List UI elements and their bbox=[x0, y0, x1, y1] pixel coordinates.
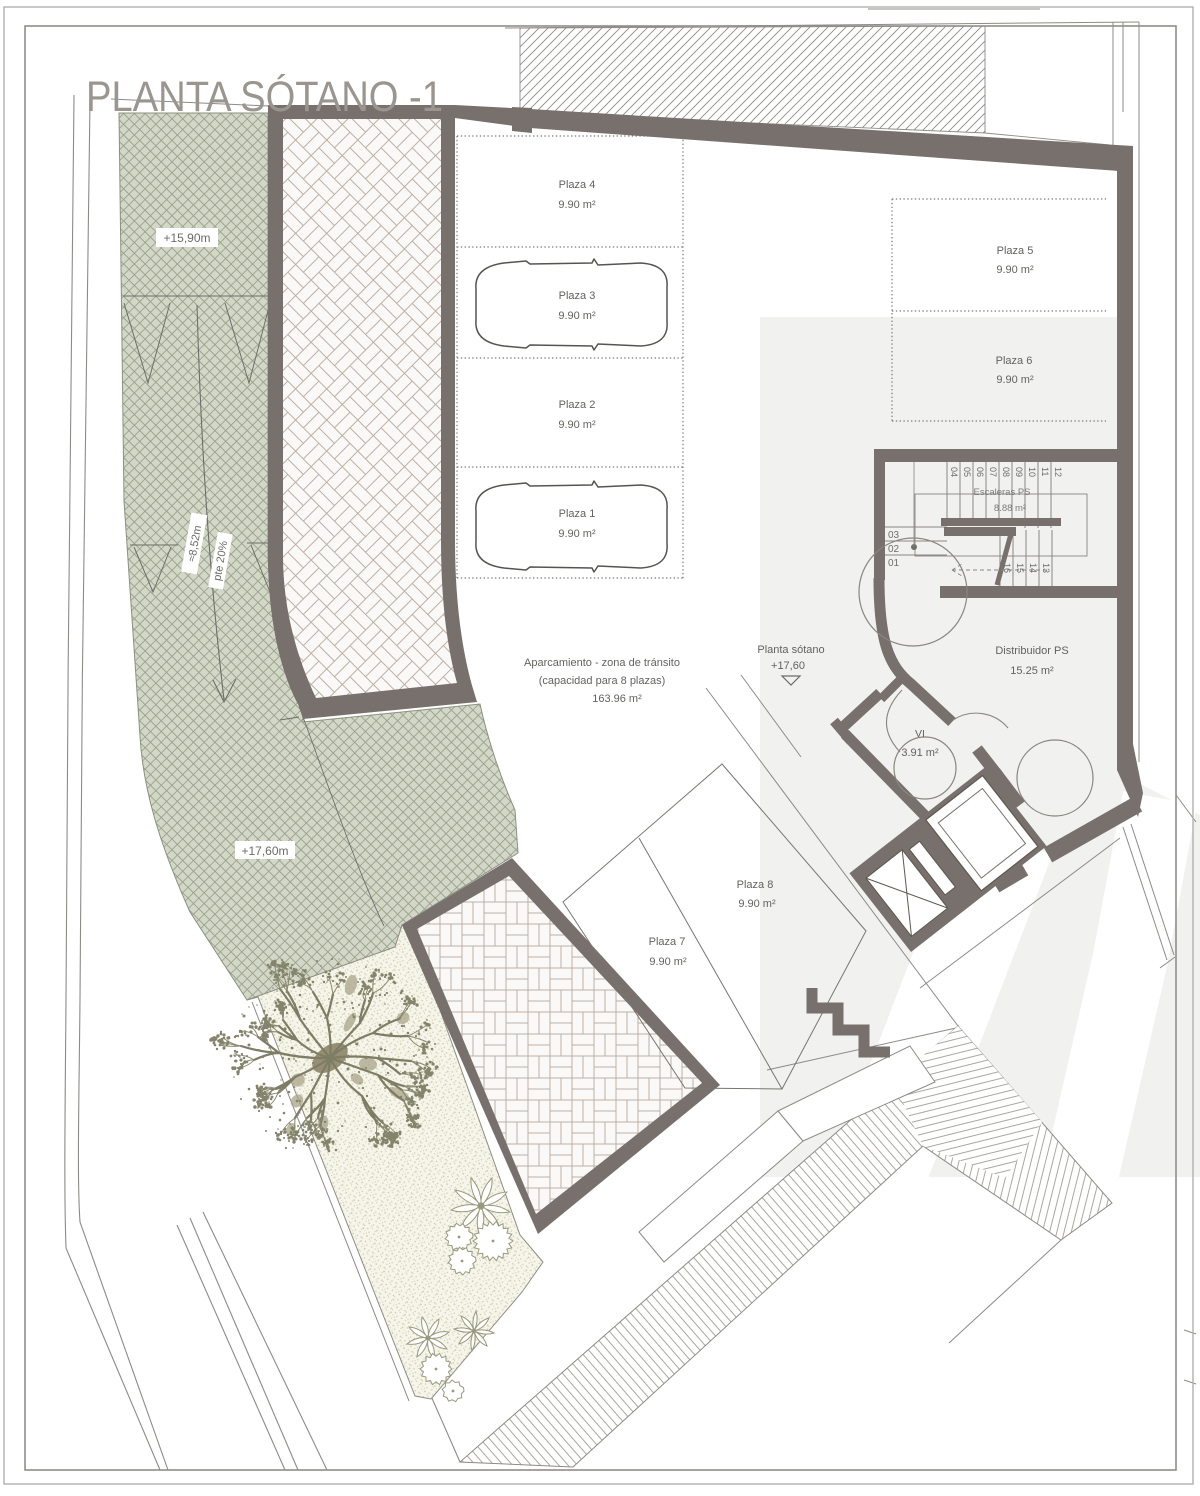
svg-text:Plaza 5: Plaza 5 bbox=[997, 245, 1034, 257]
svg-text:+17,60m: +17,60m bbox=[241, 844, 288, 858]
svg-text:12: 12 bbox=[1053, 467, 1063, 477]
svg-text:9.90 m²: 9.90 m² bbox=[649, 956, 687, 968]
svg-text:PLANTA SÓTANO -1: PLANTA SÓTANO -1 bbox=[86, 73, 443, 121]
svg-text:+15,90m: +15,90m bbox=[163, 231, 210, 245]
svg-text:Escaleras PS: Escaleras PS bbox=[973, 487, 1030, 498]
svg-text:8.88 m²: 8.88 m² bbox=[994, 503, 1026, 514]
svg-text:9.90 m²: 9.90 m² bbox=[558, 419, 596, 431]
svg-text:9.90 m²: 9.90 m² bbox=[996, 374, 1034, 386]
svg-text:02: 02 bbox=[888, 544, 900, 555]
svg-text:Distribuidor PS: Distribuidor PS bbox=[995, 645, 1068, 657]
svg-text:9.90 m²: 9.90 m² bbox=[558, 310, 596, 322]
svg-text:Aparcamiento - zona de tránsit: Aparcamiento - zona de tránsito bbox=[524, 657, 680, 669]
svg-text:9.90 m²: 9.90 m² bbox=[996, 264, 1034, 276]
svg-text:+17,60: +17,60 bbox=[771, 660, 805, 672]
svg-text:09: 09 bbox=[1014, 467, 1024, 477]
svg-text:04: 04 bbox=[949, 467, 959, 477]
svg-text:9.90 m²: 9.90 m² bbox=[558, 528, 596, 540]
svg-text:3.91 m²: 3.91 m² bbox=[901, 747, 939, 759]
svg-text:01: 01 bbox=[888, 558, 900, 569]
svg-text:9.90 m²: 9.90 m² bbox=[558, 199, 596, 211]
svg-text:06: 06 bbox=[975, 467, 985, 477]
svg-text:Plaza 4: Plaza 4 bbox=[559, 179, 596, 191]
svg-text:03: 03 bbox=[888, 530, 900, 541]
svg-text:15: 15 bbox=[1015, 563, 1025, 573]
svg-text:11: 11 bbox=[1040, 467, 1050, 476]
svg-text:15.25 m²: 15.25 m² bbox=[1010, 665, 1054, 677]
svg-text:Plaza 3: Plaza 3 bbox=[559, 290, 596, 302]
svg-text:05: 05 bbox=[962, 467, 972, 477]
svg-text:07: 07 bbox=[988, 467, 998, 477]
svg-text:Plaza 1: Plaza 1 bbox=[559, 508, 596, 520]
svg-text:16: 16 bbox=[1002, 563, 1012, 573]
svg-text:163.96 m²: 163.96 m² bbox=[592, 693, 642, 705]
svg-text:9.90 m²: 9.90 m² bbox=[738, 898, 776, 910]
svg-text:Planta sótano: Planta sótano bbox=[757, 644, 824, 656]
svg-text:10: 10 bbox=[1027, 467, 1037, 477]
svg-text:Plaza 8: Plaza 8 bbox=[737, 879, 774, 891]
svg-text:14: 14 bbox=[1028, 563, 1038, 573]
svg-text:13: 13 bbox=[1041, 563, 1051, 573]
svg-text:VI: VI bbox=[915, 728, 925, 740]
svg-text:Plaza 2: Plaza 2 bbox=[559, 399, 596, 411]
svg-text:(capacidad para 8 plazas): (capacidad para 8 plazas) bbox=[539, 675, 666, 687]
svg-text:Plaza 7: Plaza 7 bbox=[649, 936, 686, 948]
svg-text:08: 08 bbox=[1001, 467, 1011, 477]
svg-text:Plaza 6: Plaza 6 bbox=[996, 355, 1033, 367]
